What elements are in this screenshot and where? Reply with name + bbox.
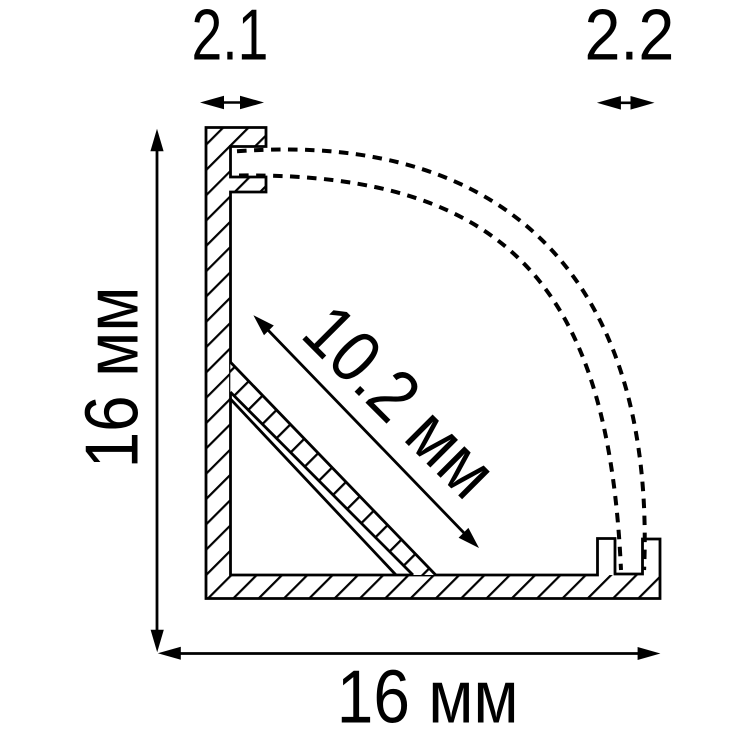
svg-text:16 мм: 16 мм (337, 654, 519, 738)
svg-text:16 мм: 16 мм (69, 287, 153, 469)
svg-text:2.2: 2.2 (584, 0, 674, 75)
svg-text:2.1: 2.1 (191, 0, 268, 75)
